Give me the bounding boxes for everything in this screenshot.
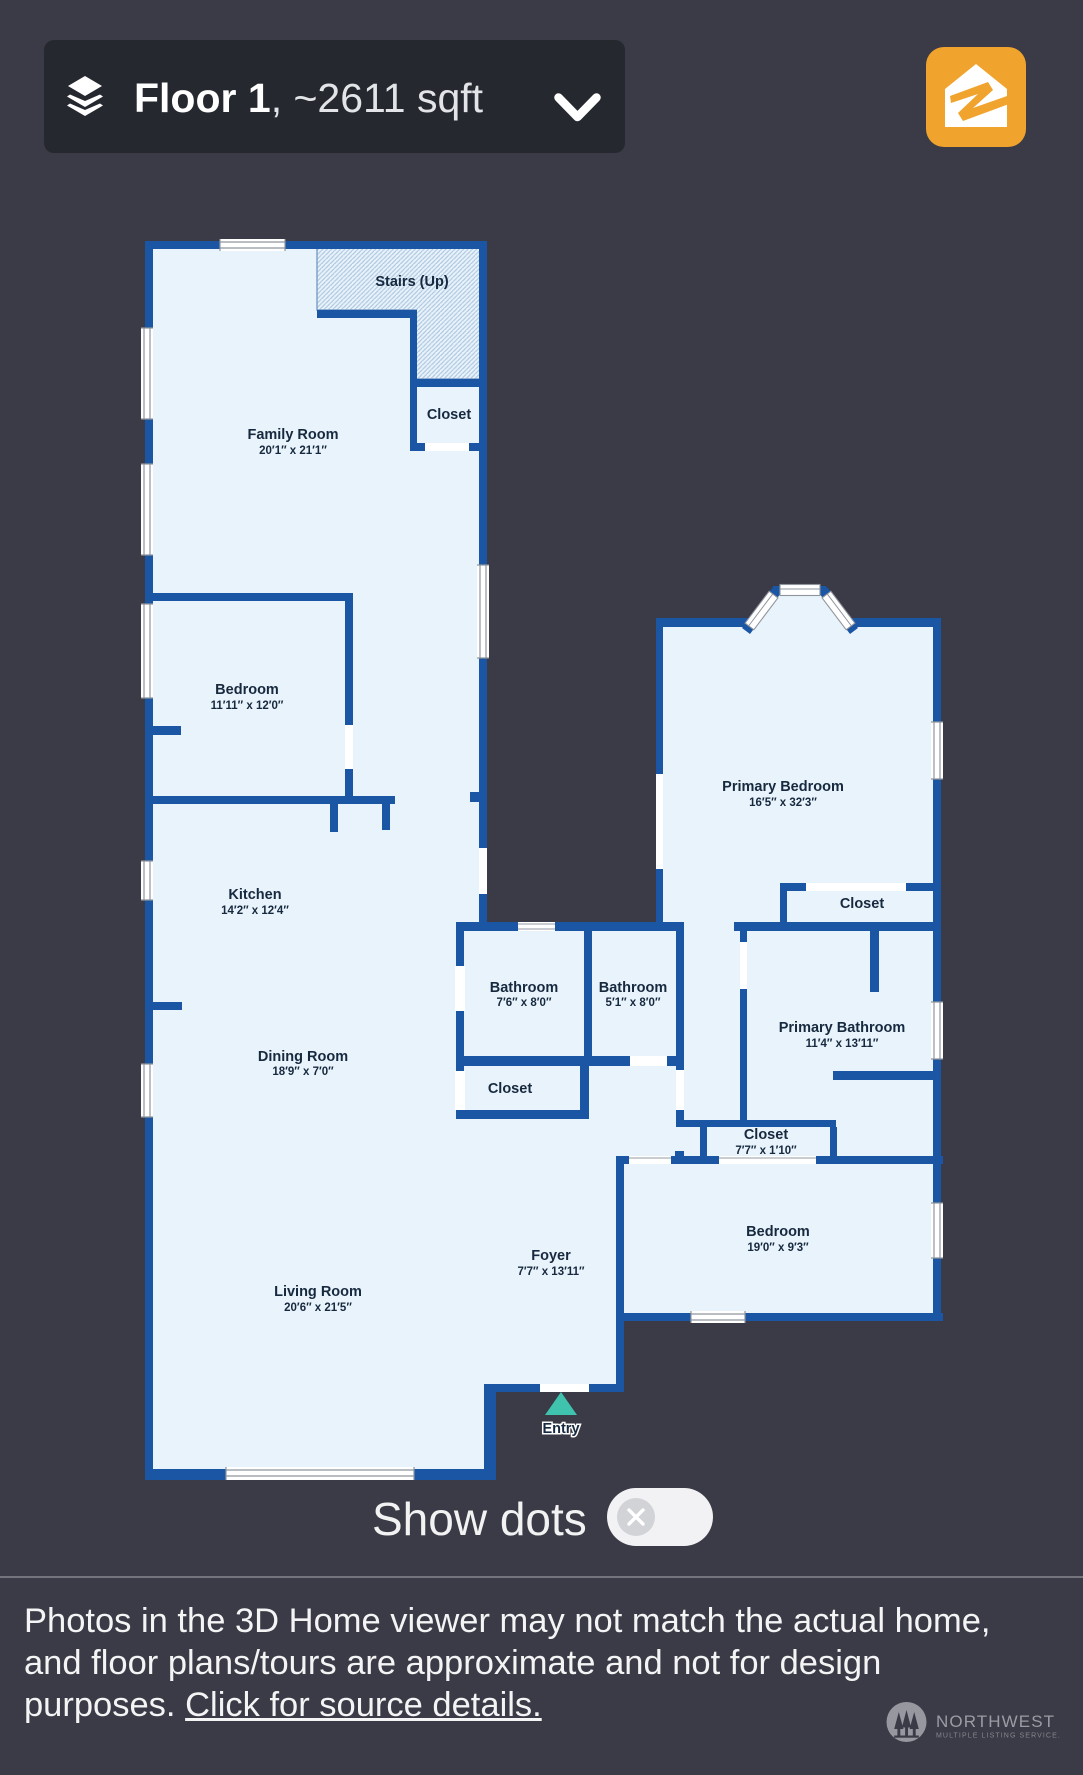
svg-text:NORTHWEST: NORTHWEST xyxy=(936,1712,1055,1731)
svg-text:Family Room: Family Room xyxy=(247,427,338,443)
svg-text:Entry: Entry xyxy=(542,1421,579,1437)
svg-text:11′11″ x 12′0″: 11′11″ x 12′0″ xyxy=(211,700,284,712)
svg-text:18′9″ x 7′0″: 18′9″ x 7′0″ xyxy=(272,1066,334,1078)
svg-text:7′7″ x 13′11″: 7′7″ x 13′11″ xyxy=(517,1266,585,1278)
svg-text:16′5″ x 32′3″: 16′5″ x 32′3″ xyxy=(749,797,817,809)
svg-text:Primary Bathroom: Primary Bathroom xyxy=(779,1020,906,1036)
svg-text:Dining Room: Dining Room xyxy=(258,1049,348,1065)
svg-text:Primary Bedroom: Primary Bedroom xyxy=(722,779,844,795)
svg-text:Foyer: Foyer xyxy=(531,1248,571,1264)
svg-text:Closet: Closet xyxy=(840,896,884,912)
svg-text:5′1″ x 8′0″: 5′1″ x 8′0″ xyxy=(606,997,661,1009)
svg-text:20′6″ x 21′5″: 20′6″ x 21′5″ xyxy=(284,1302,352,1314)
svg-text:Closet: Closet xyxy=(744,1127,788,1143)
svg-text:11′4″ x 13′11″: 11′4″ x 13′11″ xyxy=(806,1038,879,1050)
svg-text:Stairs (Up): Stairs (Up) xyxy=(375,274,448,290)
svg-text:MULTIPLE LISTING SERVICE.: MULTIPLE LISTING SERVICE. xyxy=(936,1733,1061,1740)
svg-text:7′6″ x 8′0″: 7′6″ x 8′0″ xyxy=(497,997,552,1009)
svg-text:Kitchen: Kitchen xyxy=(228,887,281,903)
svg-text:Bathroom: Bathroom xyxy=(490,980,558,996)
svg-text:Living Room: Living Room xyxy=(274,1284,362,1300)
svg-text:Bedroom: Bedroom xyxy=(746,1224,810,1240)
svg-text:19′0″ x 9′3″: 19′0″ x 9′3″ xyxy=(747,1242,809,1254)
svg-text:Bedroom: Bedroom xyxy=(215,682,279,698)
svg-text:20′1″ x 21′1″: 20′1″ x 21′1″ xyxy=(259,445,327,457)
svg-text:14′2″ x 12′4″: 14′2″ x 12′4″ xyxy=(221,905,289,917)
svg-text:Bathroom: Bathroom xyxy=(599,980,667,996)
svg-text:Closet: Closet xyxy=(488,1081,532,1097)
svg-text:Closet: Closet xyxy=(427,407,471,423)
svg-text:7′7″ x 1′10″: 7′7″ x 1′10″ xyxy=(735,1145,797,1157)
